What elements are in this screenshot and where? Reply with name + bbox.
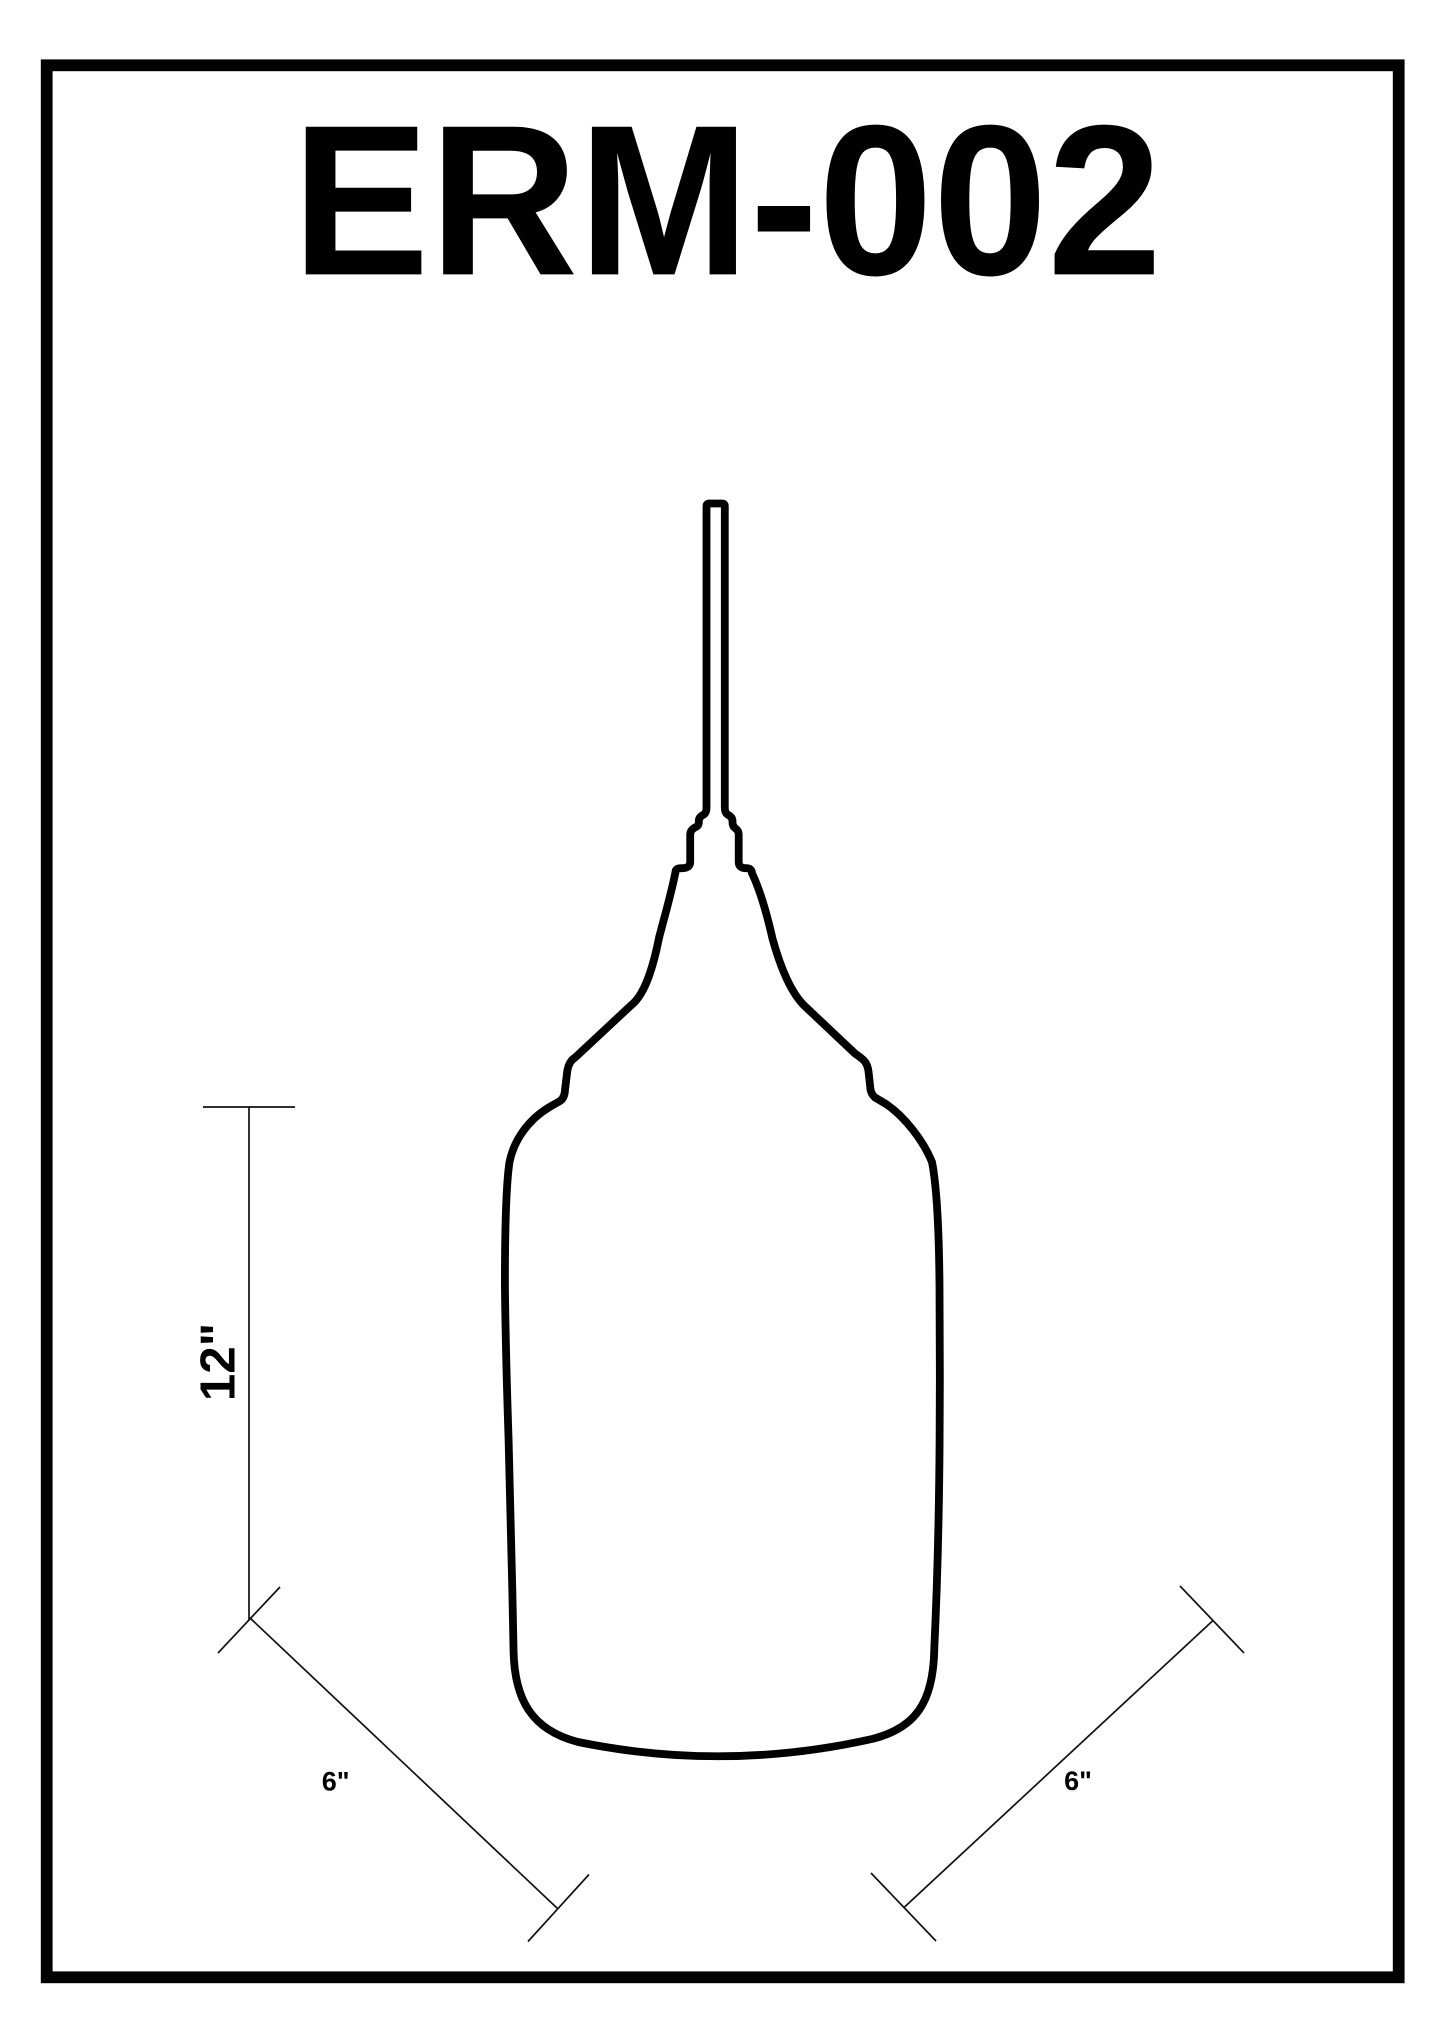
svg-text:6": 6" [322, 1766, 350, 1796]
svg-text:12": 12" [191, 1323, 246, 1401]
svg-text:6": 6" [1064, 1766, 1092, 1796]
svg-text:ERM-002: ERM-002 [292, 81, 1162, 321]
